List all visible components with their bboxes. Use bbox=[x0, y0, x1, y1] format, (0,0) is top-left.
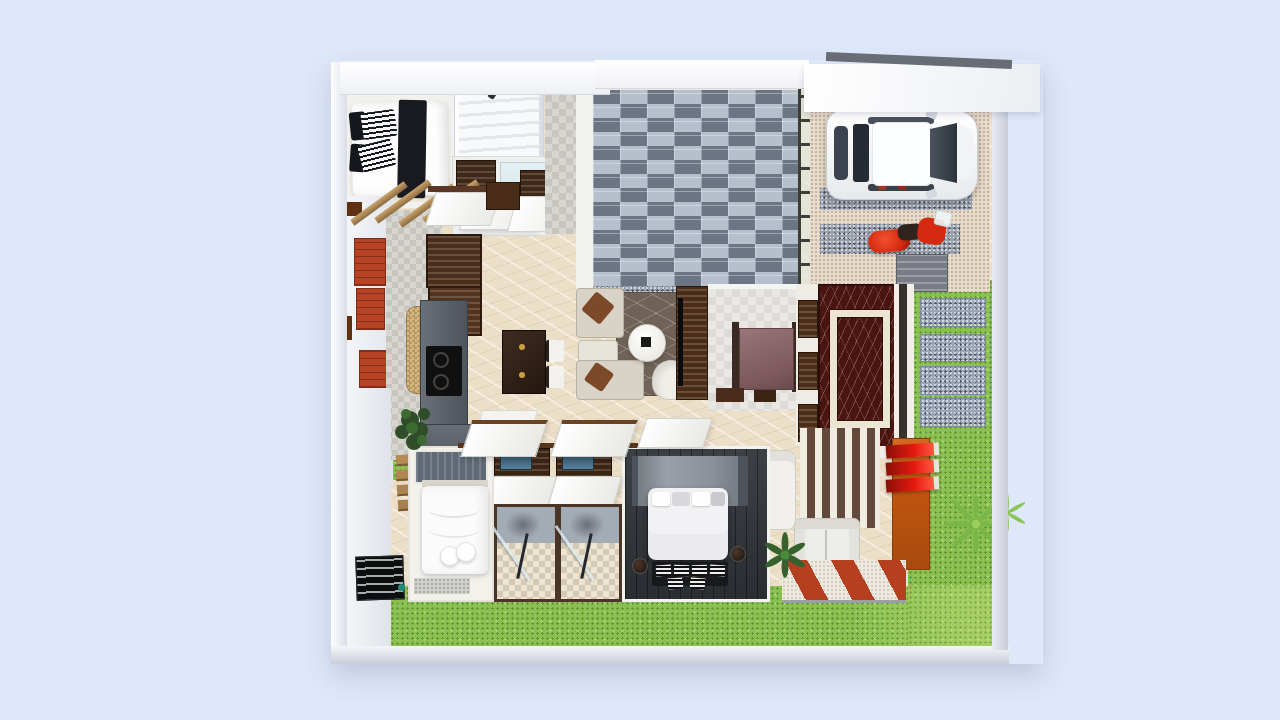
bench-cushion-3 bbox=[692, 565, 707, 577]
bench-cushion-6 bbox=[690, 577, 706, 589]
shower-stall-2 bbox=[558, 504, 622, 602]
master-pillow-3 bbox=[692, 492, 710, 506]
dining-table-knob-1 bbox=[519, 344, 525, 350]
stall-2-arch-shadow bbox=[569, 511, 605, 539]
brick-panel-3 bbox=[359, 350, 387, 388]
bedroom-2-rug bbox=[414, 578, 470, 594]
brick-panel-2 bbox=[356, 288, 385, 330]
foyer-rug bbox=[739, 328, 794, 390]
car bbox=[826, 110, 976, 198]
tv-screen bbox=[678, 298, 683, 386]
door-canopy-4 bbox=[460, 420, 548, 457]
car-sunroof bbox=[853, 124, 869, 182]
bed-2-pillow-roll-2 bbox=[456, 542, 476, 562]
terrace-sofa-split bbox=[825, 530, 827, 564]
shower-stall-1 bbox=[494, 504, 558, 602]
stepping-paver-4 bbox=[920, 398, 986, 427]
foyer-threshold-2 bbox=[754, 390, 776, 402]
boundary-wall-bottom bbox=[331, 646, 1009, 664]
door-canopy-stall-1 bbox=[484, 476, 559, 506]
foyer-cabinet-1 bbox=[798, 300, 818, 338]
brick-panel-1 bbox=[354, 238, 386, 286]
car-windshield bbox=[930, 123, 957, 183]
master-pillow-4 bbox=[711, 492, 725, 506]
doormat bbox=[355, 555, 405, 601]
corridor-header-block bbox=[486, 182, 520, 210]
car-roof-panel bbox=[872, 122, 932, 186]
bench-cushion-4 bbox=[710, 565, 726, 577]
porch-side-stripes bbox=[894, 284, 914, 456]
stepping-paver-3 bbox=[920, 366, 986, 395]
dining-table-knob-2 bbox=[519, 372, 525, 378]
door-canopy-stall-2 bbox=[548, 476, 623, 506]
bench-cushion-1 bbox=[656, 565, 672, 577]
master-pillow-2 bbox=[672, 492, 690, 506]
foyer-side-rail-left bbox=[732, 322, 739, 392]
bed-1-pillow-striped-1 bbox=[360, 109, 397, 140]
stall-1-arch-shadow bbox=[505, 511, 541, 539]
terrace-plant bbox=[762, 532, 808, 578]
coffee-table-tray bbox=[641, 337, 651, 347]
bed-2-crease-1 bbox=[428, 500, 480, 518]
cooktop-burner-2 bbox=[433, 374, 449, 390]
drain-dot bbox=[398, 584, 405, 591]
bedside-stool-2 bbox=[730, 546, 746, 562]
dining-chair-1 bbox=[546, 340, 564, 362]
boundary-wall-right bbox=[992, 100, 1008, 650]
kitchen-plant bbox=[388, 400, 436, 456]
bedside-stool-1 bbox=[632, 558, 648, 574]
master-pillow-1 bbox=[652, 492, 670, 506]
brick-courtyard bbox=[593, 86, 801, 290]
bench-cushion-2 bbox=[674, 565, 689, 577]
stepping-paver-1 bbox=[920, 298, 986, 327]
dining-chair-2 bbox=[546, 366, 564, 388]
stepping-paver-2 bbox=[920, 334, 986, 362]
terrace-striped-floor bbox=[800, 428, 880, 528]
roof-band-courtyard bbox=[595, 60, 809, 89]
door-canopy-6 bbox=[637, 418, 713, 448]
bed-2-crease-2 bbox=[428, 520, 480, 538]
porch-inlay-border bbox=[830, 310, 890, 428]
car-hood bbox=[957, 126, 973, 180]
foyer-threshold-1 bbox=[716, 388, 744, 402]
boundary-wall-left bbox=[331, 62, 347, 652]
cooktop-burner-1 bbox=[433, 352, 449, 368]
foyer-cabinet-2 bbox=[798, 352, 818, 390]
car-rear-window bbox=[834, 126, 848, 180]
bench-cushion-5 bbox=[668, 577, 684, 589]
roof-band-top-left bbox=[340, 62, 610, 95]
dining-table bbox=[502, 330, 546, 394]
kitchen-upper-cabinet-1 bbox=[426, 234, 482, 288]
carport-roof-slab bbox=[804, 64, 1040, 112]
floor-plan-render bbox=[0, 0, 1280, 720]
door-canopy-5 bbox=[550, 420, 638, 457]
wall-court-left bbox=[576, 86, 594, 288]
